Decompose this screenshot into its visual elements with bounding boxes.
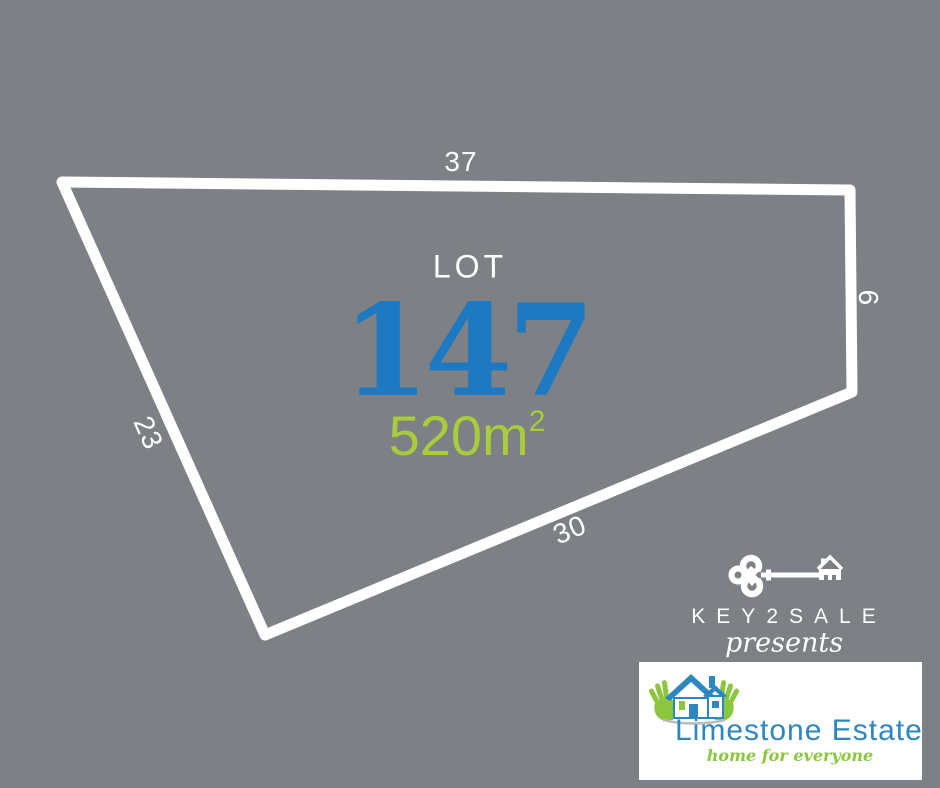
limestone-tagline: home for everyone	[707, 746, 873, 765]
key2sale-tagline: presents	[725, 628, 843, 659]
limestone-card: Limestone Estate home for everyone	[639, 662, 922, 780]
dimension-top: 37	[444, 146, 477, 178]
key2sale-brand: KEY2SALE	[691, 605, 886, 629]
lot-area-value: 520m	[389, 404, 529, 467]
limestone-name: Limestone Estate	[675, 714, 923, 748]
key-icon	[713, 542, 848, 604]
lot-flyer-canvas: 37 9 30 23 LOT 147 520m2 KEY2SALE presen…	[0, 0, 940, 788]
lot-number: 147	[342, 288, 590, 414]
dimension-right: 9	[853, 289, 885, 306]
lot-area: 520m2	[389, 408, 546, 464]
lot-area-exponent: 2	[529, 405, 546, 438]
